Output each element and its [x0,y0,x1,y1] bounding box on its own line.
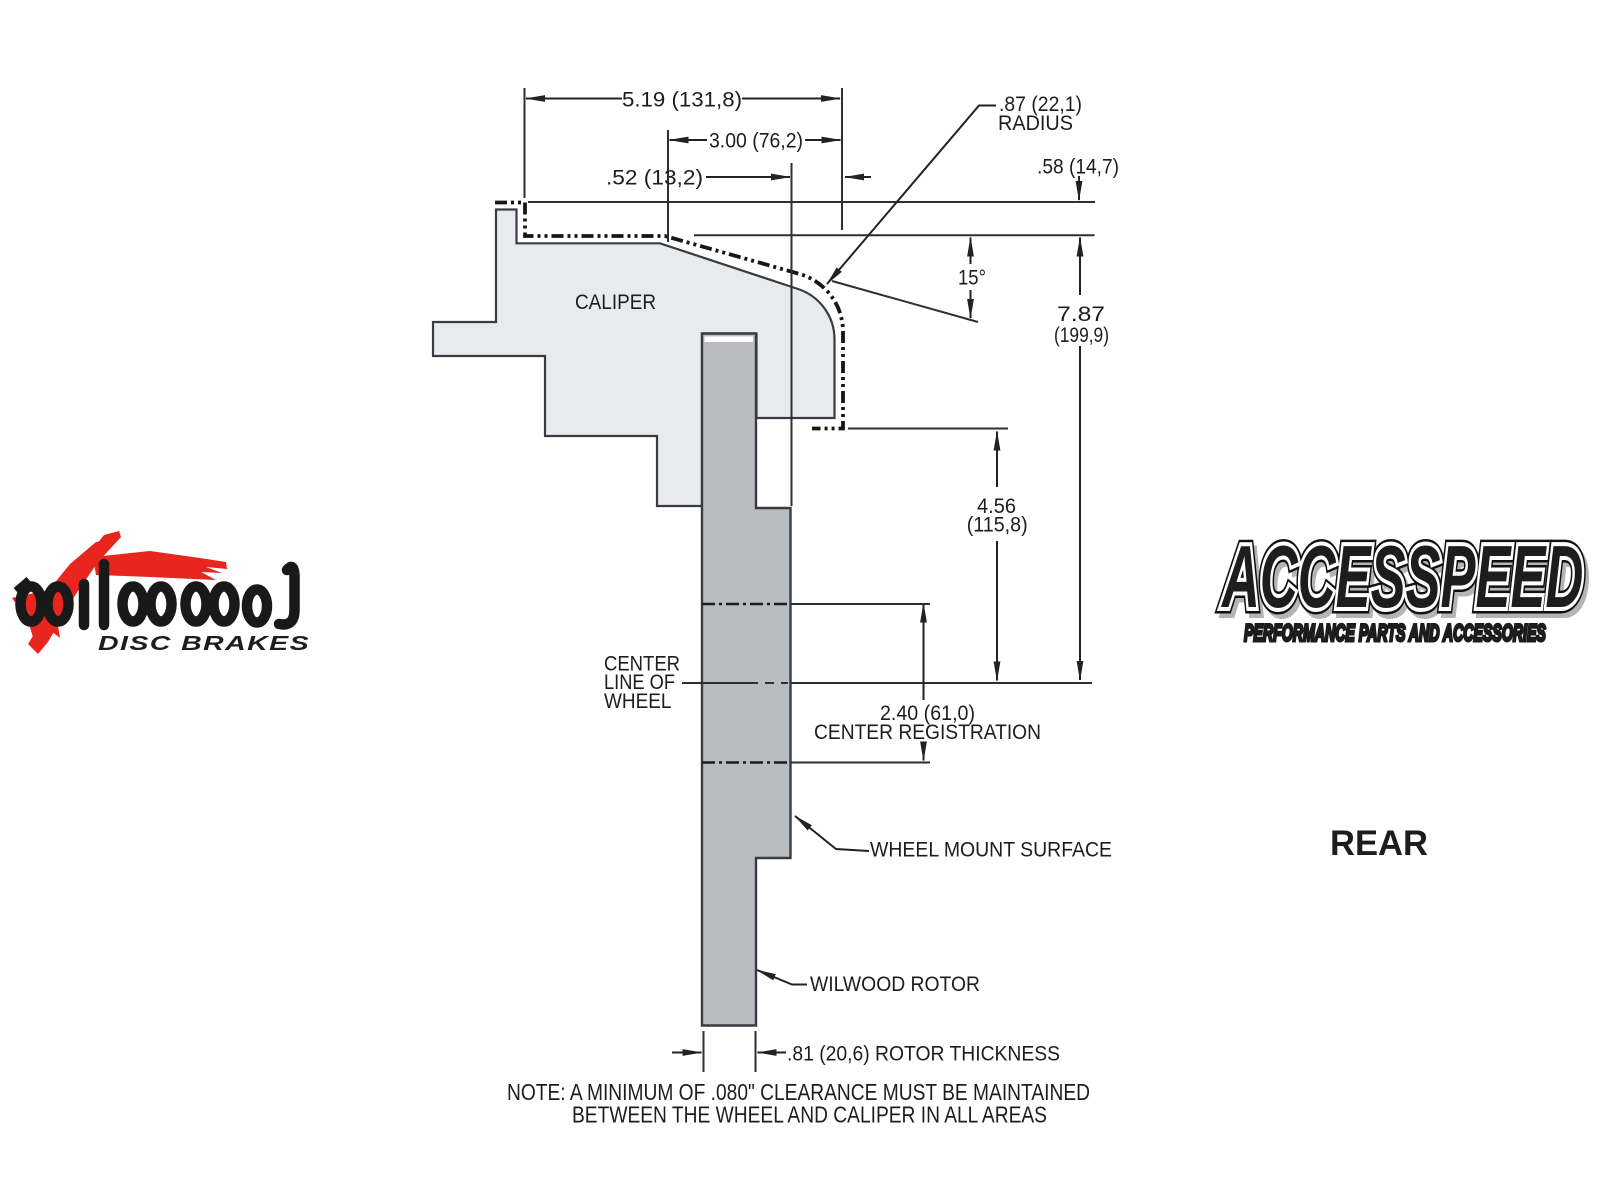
svg-text:7.87: 7.87 [1057,303,1105,326]
svg-text:(115,8): (115,8) [967,514,1028,537]
svg-text:.81 (20,6) ROTOR THICKNESS: .81 (20,6) ROTOR THICKNESS [787,1043,1060,1066]
svg-text:3.00 (76,2): 3.00 (76,2) [709,130,803,153]
svg-text:CALIPER: CALIPER [575,291,656,314]
svg-text:.58 (14,7): .58 (14,7) [1037,156,1119,179]
svg-text:15°: 15° [958,267,986,290]
svg-text:BETWEEN THE WHEEL AND CALIPER: BETWEEN THE WHEEL AND CALIPER IN ALL ARE… [572,1102,1047,1128]
svg-text:(199,9): (199,9) [1054,324,1109,347]
svg-text:ACCESSPEED: ACCESSPEED [1221,528,1584,626]
svg-text:PERFORMANCE PARTS AND ACCESSOR: PERFORMANCE PARTS AND ACCESSORIES [1244,620,1546,647]
svg-text:DISC BRAKES: DISC BRAKES [98,633,310,655]
svg-text:WILWOOD ROTOR: WILWOOD ROTOR [810,973,980,996]
svg-text:CENTER REGISTRATION: CENTER REGISTRATION [814,721,1041,744]
svg-text:.52 (13,2): .52 (13,2) [606,167,703,190]
svg-text:5.19 (131,8): 5.19 (131,8) [622,89,742,112]
svg-text:WHEEL MOUNT SURFACE: WHEEL MOUNT SURFACE [870,839,1112,862]
svg-text:RADIUS: RADIUS [998,112,1073,135]
svg-text:WHEEL: WHEEL [604,690,672,713]
svg-text:REAR: REAR [1330,824,1428,863]
